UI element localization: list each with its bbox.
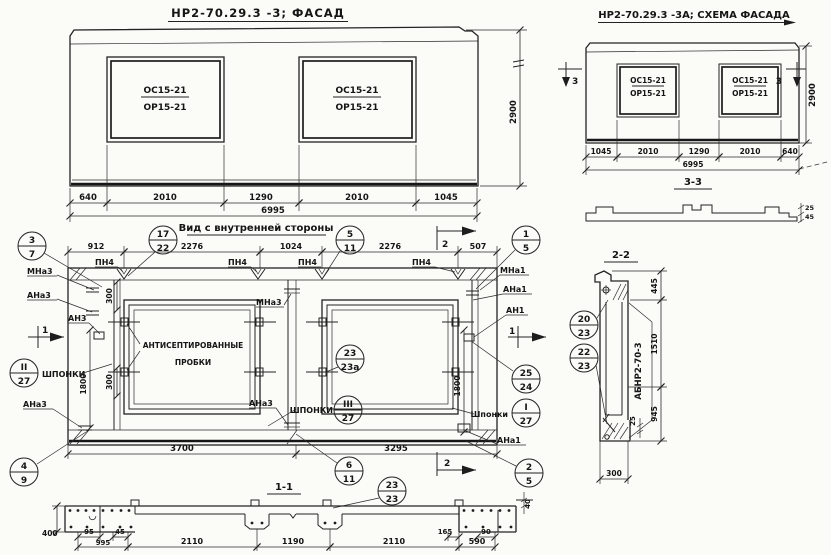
label-ana3-low: АНа3 bbox=[23, 400, 47, 409]
svg-text:5: 5 bbox=[526, 477, 532, 487]
svg-text:22: 22 bbox=[157, 244, 170, 254]
callout-roman2-27: II 27 bbox=[10, 359, 38, 387]
svg-text:2110: 2110 bbox=[181, 537, 204, 546]
label-an3: АН3 bbox=[68, 314, 86, 323]
scheme-title: НР2-70.29.3 -3А; СХЕМА ФАСАДА bbox=[598, 10, 790, 21]
profile-1-1 bbox=[65, 500, 533, 532]
svg-text:3700: 3700 bbox=[170, 444, 194, 454]
svg-text:23а: 23а bbox=[341, 363, 360, 373]
facade-window-1: ОС15-21 ОР15-21 bbox=[107, 57, 224, 142]
svg-text:1510: 1510 bbox=[650, 334, 659, 355]
callout-roman1-27: I 27 bbox=[512, 399, 540, 427]
svg-text:ОР15-21: ОР15-21 bbox=[630, 89, 666, 98]
svg-text:23: 23 bbox=[386, 495, 399, 505]
label-mna1: МНа1 bbox=[500, 266, 526, 275]
svg-text:2010: 2010 bbox=[153, 193, 177, 203]
svg-text:20: 20 bbox=[578, 315, 591, 325]
svg-text:25: 25 bbox=[520, 369, 533, 379]
scheme-window-2: ОС15-21 ОР15-21 bbox=[719, 64, 781, 117]
center-labels: МНа3 АНа3 ШПОНКИ bbox=[249, 294, 333, 426]
facade-window-2: ОС15-21 ОР15-21 bbox=[299, 57, 416, 142]
plugs-note-line1: АНТИСЕПТИРОВАННЫЕ bbox=[143, 341, 244, 350]
interior-title: Вид с внутренней стороны bbox=[179, 223, 334, 234]
window-mark-bottom: ОР15-21 bbox=[143, 103, 186, 113]
interior-window-2 bbox=[306, 300, 474, 414]
svg-text:1: 1 bbox=[523, 230, 529, 240]
svg-text:1045: 1045 bbox=[591, 147, 612, 156]
svg-text:5: 5 bbox=[347, 230, 353, 240]
svg-text:507: 507 bbox=[470, 242, 487, 251]
svg-text:300: 300 bbox=[105, 288, 114, 304]
item-mark-label: АБНР2-70-3 bbox=[634, 342, 644, 399]
section-3-3: 3-3 25 45 bbox=[586, 177, 815, 223]
svg-text:6995: 6995 bbox=[683, 160, 704, 169]
svg-text:6: 6 bbox=[346, 461, 352, 471]
svg-text:22: 22 bbox=[578, 348, 591, 358]
svg-text:2010: 2010 bbox=[740, 147, 761, 156]
svg-text:45: 45 bbox=[115, 528, 125, 536]
facade-title: НР2-70.29.3 -3; ФАСАД bbox=[171, 6, 345, 20]
section-3-flag-right: 3 bbox=[776, 62, 806, 87]
svg-text:ПН4: ПН4 bbox=[298, 258, 317, 267]
svg-text:2900: 2900 bbox=[509, 100, 519, 124]
svg-text:90: 90 bbox=[481, 528, 491, 536]
label-mna3-center: МНа3 bbox=[256, 298, 282, 307]
svg-text:945: 945 bbox=[650, 406, 659, 422]
facade-elevation: НР2-70.29.3 -3; ФАСАД ОС15-21 ОР15-21 ОС… bbox=[70, 6, 527, 222]
svg-text:995: 995 bbox=[96, 539, 111, 547]
svg-text:2-2: 2-2 bbox=[612, 250, 630, 261]
svg-text:3: 3 bbox=[776, 77, 782, 87]
svg-text:25: 25 bbox=[629, 416, 637, 426]
svg-text:3295: 3295 bbox=[384, 444, 408, 454]
svg-text:27: 27 bbox=[342, 414, 355, 424]
svg-text:1800: 1800 bbox=[453, 376, 462, 397]
svg-text:1: 1 bbox=[509, 327, 515, 337]
pn4-labels: ПН4 ПН4 ПН4 ПН4 bbox=[95, 258, 455, 272]
svg-text:2900: 2900 bbox=[808, 83, 818, 107]
section-2-flag-bottom: 2 bbox=[437, 452, 476, 476]
svg-text:4: 4 bbox=[21, 462, 27, 472]
svg-text:3: 3 bbox=[572, 77, 578, 87]
svg-text:ОС15-21: ОС15-21 bbox=[732, 76, 768, 85]
svg-text:640: 640 bbox=[782, 147, 798, 156]
plugs-note-line2: ПРОБКИ bbox=[175, 358, 211, 367]
svg-text:ОС15-21: ОС15-21 bbox=[630, 76, 666, 85]
svg-text:445: 445 bbox=[650, 278, 659, 294]
svg-text:5: 5 bbox=[523, 244, 529, 254]
svg-text:23: 23 bbox=[578, 362, 591, 372]
callout-3-7: 3 7 bbox=[18, 232, 102, 287]
svg-text:9: 9 bbox=[21, 476, 27, 486]
svg-text:590: 590 bbox=[469, 537, 486, 546]
interior-top-dims: 912 2276 1024 2276 507 bbox=[68, 242, 497, 268]
facade-panel-outline bbox=[70, 27, 478, 186]
window-mark-bottom: ОР15-21 bbox=[335, 103, 378, 113]
svg-text:27: 27 bbox=[520, 417, 533, 427]
svg-text:912: 912 bbox=[88, 242, 105, 251]
svg-text:23: 23 bbox=[386, 481, 399, 491]
svg-text:1024: 1024 bbox=[280, 242, 303, 251]
label-shponki-center: ШПОНКИ bbox=[290, 406, 333, 415]
section-3-flag-left: 3 bbox=[558, 62, 582, 87]
label-shponki-left: ШПОНКИ bbox=[42, 370, 85, 379]
equals-mark bbox=[513, 60, 524, 67]
svg-text:2: 2 bbox=[526, 463, 532, 473]
facade-scheme: НР2-70.29.3 -3А; СХЕМА ФАСАДА ОС15-21 ОР… bbox=[558, 10, 827, 223]
window-mark-top: ОС15-21 bbox=[335, 86, 378, 96]
profile-3-3 bbox=[586, 205, 797, 221]
callout-2-5: 2 5 bbox=[466, 441, 543, 487]
svg-text:II: II bbox=[21, 363, 28, 373]
interior-panel-outline bbox=[68, 268, 497, 445]
svg-text:95: 95 bbox=[84, 528, 94, 536]
svg-text:1290: 1290 bbox=[689, 147, 710, 156]
label-an1: АН1 bbox=[506, 306, 525, 315]
scheme-window-1: ОС15-21 ОР15-21 bbox=[617, 64, 679, 117]
label-ana3: АНа3 bbox=[27, 291, 51, 300]
svg-text:2276: 2276 bbox=[181, 242, 204, 251]
blueprint-sheet: НР2-70.29.3 -3; ФАСАД ОС15-21 ОР15-21 ОС… bbox=[0, 0, 831, 555]
interior-window-1: АНТИСЕПТИРОВАННЫЕ ПРОБКИ bbox=[108, 300, 276, 414]
svg-text:40: 40 bbox=[524, 499, 532, 509]
svg-text:3-3: 3-3 bbox=[684, 177, 702, 188]
svg-text:23: 23 bbox=[578, 329, 591, 339]
svg-text:45: 45 bbox=[805, 213, 815, 221]
svg-text:ОР15-21: ОР15-21 bbox=[732, 89, 768, 98]
svg-text:1045: 1045 bbox=[434, 193, 458, 203]
svg-text:1190: 1190 bbox=[282, 537, 305, 546]
svg-text:400: 400 bbox=[42, 529, 58, 538]
interior-view: Вид с внутренней стороны 912 2276 1024 2… bbox=[10, 223, 546, 487]
svg-text:1290: 1290 bbox=[249, 193, 273, 203]
svg-text:165: 165 bbox=[438, 528, 453, 536]
callout-1-5: 1 5 bbox=[476, 226, 540, 289]
svg-text:I: I bbox=[524, 403, 527, 413]
svg-text:640: 640 bbox=[79, 193, 97, 203]
callout-20-23: 20 23 bbox=[570, 300, 608, 339]
svg-text:2: 2 bbox=[442, 240, 448, 250]
interior-bottom-dims: 3700 3295 bbox=[68, 444, 497, 459]
svg-text:23: 23 bbox=[344, 349, 357, 359]
blueprint-canvas: НР2-70.29.3 -3; ФАСАД ОС15-21 ОР15-21 ОС… bbox=[0, 0, 831, 555]
window-mark-top: ОС15-21 bbox=[143, 86, 186, 96]
scheme-height-dim: 2900 bbox=[799, 46, 818, 143]
svg-text:2276: 2276 bbox=[379, 242, 402, 251]
svg-text:11: 11 bbox=[343, 475, 356, 485]
label-ana1: АНа1 bbox=[503, 285, 527, 294]
label-ana3-center: АНа3 bbox=[249, 399, 273, 408]
svg-text:7: 7 bbox=[29, 250, 35, 260]
pn4-notches bbox=[117, 269, 465, 279]
svg-text:2010: 2010 bbox=[345, 193, 369, 203]
profile-2-2: АБНР2-70-3 bbox=[595, 271, 652, 441]
svg-text:11: 11 bbox=[344, 244, 357, 254]
svg-text:2110: 2110 bbox=[383, 537, 406, 546]
facade-height-dim: 2900 bbox=[466, 30, 527, 186]
section-1-flag-right: 1 bbox=[508, 326, 546, 348]
svg-text:17: 17 bbox=[157, 230, 170, 240]
callout-25-24: 25 24 bbox=[471, 341, 540, 393]
svg-text:300: 300 bbox=[105, 374, 114, 390]
svg-text:1-1: 1-1 bbox=[275, 482, 293, 493]
svg-text:6995: 6995 bbox=[261, 206, 285, 216]
section-2-2: 2-2 АБНР2-70-3 445 1510 945 25 bbox=[570, 250, 667, 484]
section-1-1: 1-1 400 bbox=[42, 477, 533, 551]
label-mna3: МНа3 bbox=[27, 267, 53, 276]
svg-text:3: 3 bbox=[29, 236, 35, 246]
svg-text:ПН4: ПН4 bbox=[228, 258, 247, 267]
svg-text:ПН4: ПН4 bbox=[412, 258, 431, 267]
svg-text:24: 24 bbox=[520, 383, 533, 393]
svg-text:300: 300 bbox=[606, 469, 622, 478]
callout-roman3-27: III 27 bbox=[334, 396, 362, 424]
label-shponki-right: Шпонки bbox=[471, 410, 508, 419]
scheme-dim-chain: 1045 2010 1290 2010 640 6995 bbox=[586, 120, 827, 175]
svg-text:27: 27 bbox=[18, 377, 31, 387]
svg-text:ПН4: ПН4 bbox=[95, 258, 114, 267]
svg-text:25: 25 bbox=[805, 204, 815, 212]
section-1-flag-left: 1 bbox=[28, 326, 64, 348]
svg-text:2: 2 bbox=[444, 459, 450, 469]
svg-text:III: III bbox=[343, 400, 353, 410]
callout-22-23: 22 23 bbox=[570, 344, 607, 424]
label-ana1-low: АНа1 bbox=[497, 436, 521, 445]
svg-text:1: 1 bbox=[42, 326, 48, 336]
svg-text:2010: 2010 bbox=[638, 147, 659, 156]
